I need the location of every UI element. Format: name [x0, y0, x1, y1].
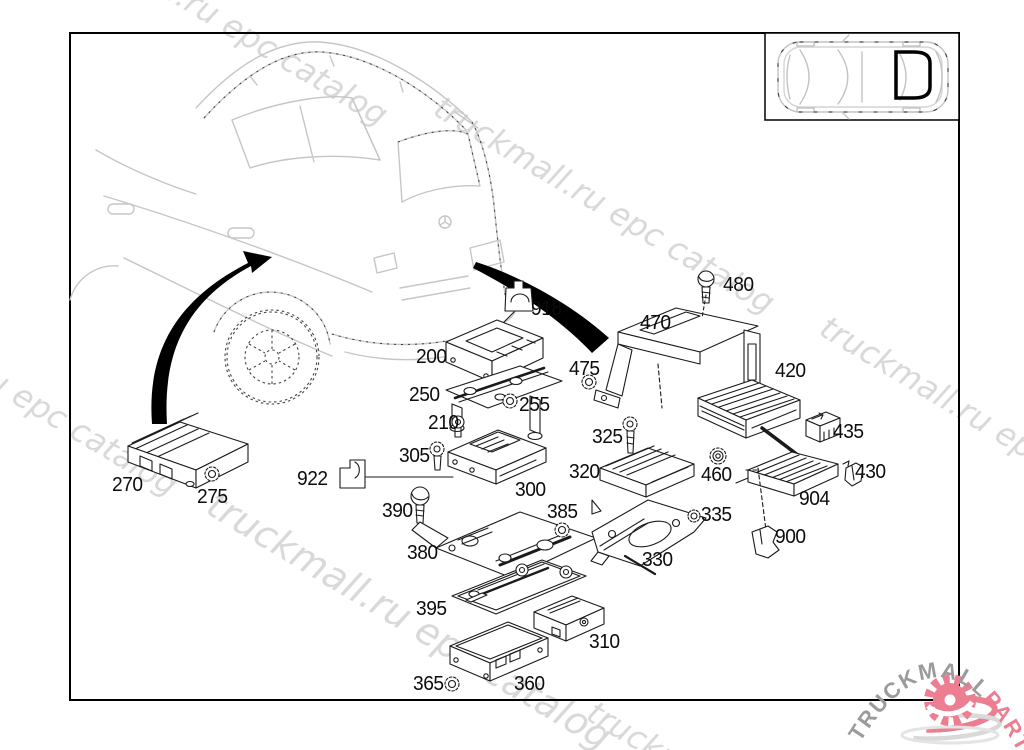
- car-dashed-accents: [204, 52, 508, 345]
- part-210-screw: [452, 416, 464, 437]
- part-475-nut: [582, 375, 596, 389]
- part-420-control-module: [698, 380, 803, 459]
- part-325-bolt: [623, 417, 637, 453]
- part-435-relay: [806, 412, 840, 442]
- part-360-control-module: [450, 622, 548, 681]
- part-430-clip: [843, 461, 863, 486]
- rear-wheel: [225, 310, 319, 404]
- part-330-bracket: [591, 500, 706, 574]
- part-900-bracket: [752, 526, 779, 558]
- part-335-nut: [688, 510, 700, 522]
- part-305-screw: [430, 442, 444, 470]
- part-385-nut: [555, 523, 569, 537]
- parts-catalog-page: truckmall.ru epc catalogtruckmall.ru epc…: [0, 0, 1024, 750]
- part-904-connector: [736, 452, 838, 530]
- part-310-control-module: [534, 596, 604, 641]
- car-top-view-inset: [765, 33, 959, 120]
- part-320-control-module: [600, 446, 694, 497]
- car-rear-illustration: [70, 42, 518, 360]
- part-275-nut: [205, 467, 219, 481]
- part-365-nut: [445, 677, 459, 691]
- diagram-artwork: TRUCKMALLPARTS: [0, 0, 1024, 750]
- part-255-nut: [503, 394, 517, 408]
- part-390-screw: [411, 487, 429, 523]
- part-480-bolt: [698, 271, 714, 303]
- part-460-grommet: [710, 448, 726, 464]
- part-270-control-module: [128, 413, 248, 488]
